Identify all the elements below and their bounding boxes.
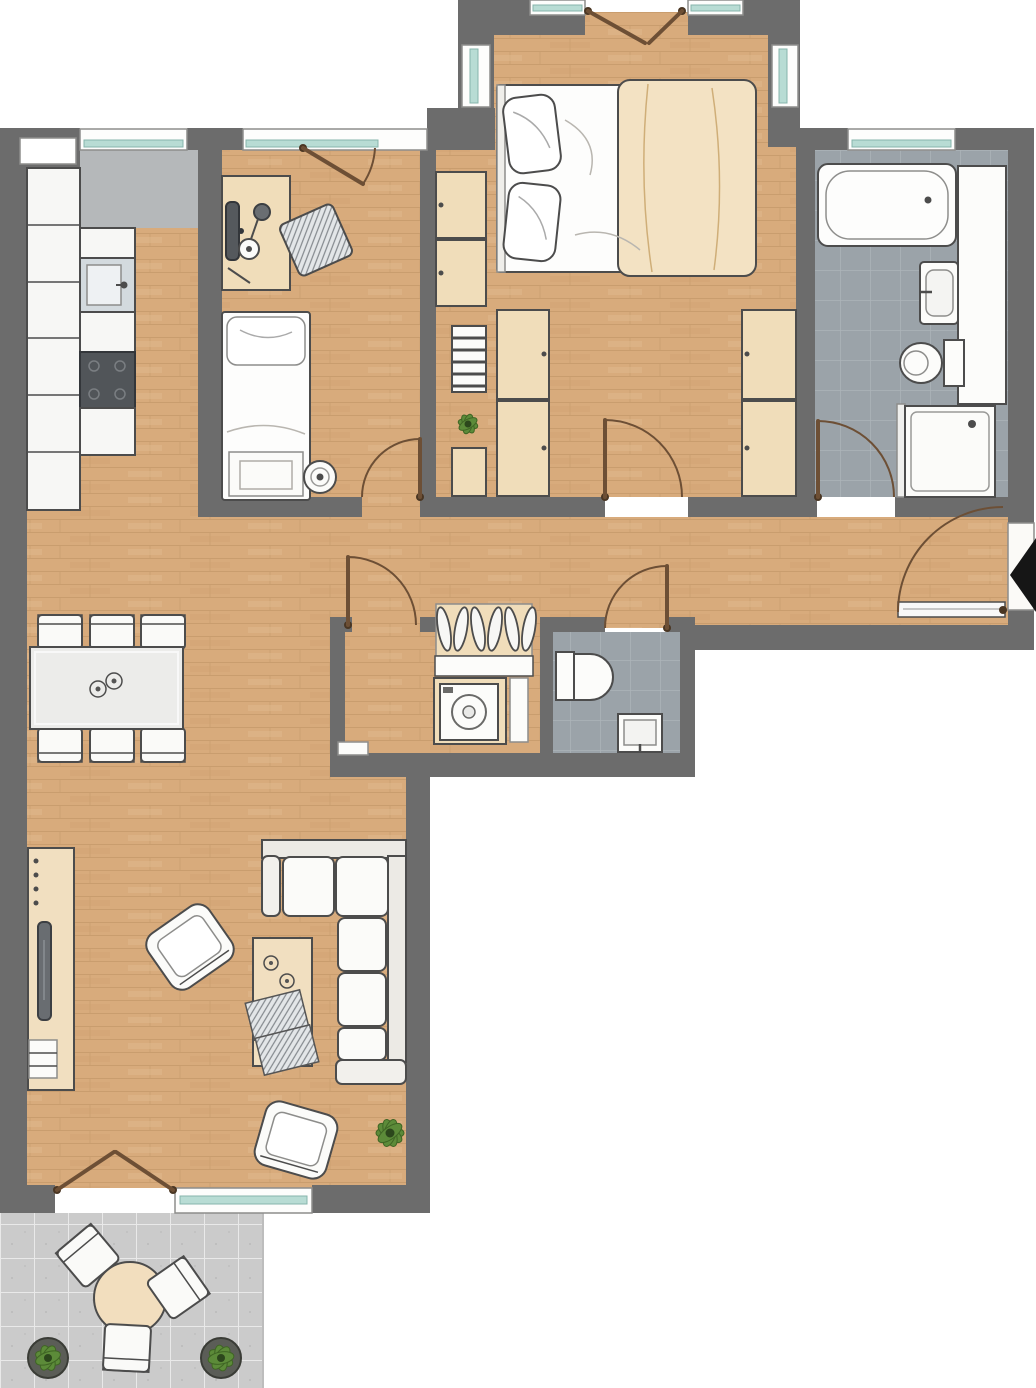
cabinet-knob — [542, 446, 547, 451]
bath-toilet — [900, 340, 964, 386]
bath-cabinet — [958, 166, 1006, 404]
chair-seat — [141, 728, 185, 762]
shower-drain — [968, 420, 976, 428]
laundry-mat — [338, 742, 368, 755]
dining — [30, 615, 185, 762]
wall-laundry-left — [330, 617, 345, 753]
bathroom-window — [848, 129, 955, 150]
kitchen-work-zone — [80, 150, 198, 228]
sofa-cushion — [338, 973, 386, 1026]
sofa-back-right — [388, 856, 406, 1062]
table-plate-dot — [96, 687, 101, 692]
tub-drain — [925, 197, 932, 204]
pillow — [502, 93, 563, 175]
pillow — [502, 181, 562, 262]
wc-toilet-tank — [556, 652, 574, 700]
sofa-cushion — [338, 918, 386, 971]
plant-center — [217, 1354, 225, 1362]
wardrobe-left — [497, 310, 549, 399]
wall-wc-right — [680, 617, 695, 753]
dining-chair — [141, 615, 185, 649]
wall-hall-bottom — [680, 625, 1034, 650]
wall-bay-top-c — [688, 15, 743, 35]
dining-chair — [38, 615, 82, 649]
kitchen-sink — [80, 258, 135, 312]
wall-kid-bedroom — [420, 147, 436, 517]
wall-living-bottom-a — [0, 1185, 55, 1213]
cabinet-knob — [542, 352, 547, 357]
sofa-arm-bottom — [336, 1060, 406, 1084]
chair-seat — [38, 615, 82, 649]
toilet-bowl — [900, 343, 942, 383]
monitor — [226, 202, 239, 260]
wall-south-rooms-c — [688, 497, 817, 517]
cabinet-knob — [439, 271, 444, 276]
shower-partition — [897, 404, 905, 497]
wc-sink-basin — [624, 720, 656, 745]
wall-right-upper — [1008, 128, 1034, 523]
plant-center — [465, 421, 472, 428]
kitchen-counter-mid — [80, 312, 135, 352]
kid-room-window — [243, 129, 427, 150]
wall-kitchen-kid — [198, 150, 222, 497]
window-glass — [246, 140, 378, 147]
sink-basin — [87, 265, 121, 305]
laundry-shelf — [435, 656, 533, 676]
kitchen-cabinet-row — [27, 168, 80, 510]
sofa-back-top — [262, 840, 406, 858]
bay-side-window-left — [462, 45, 490, 107]
wall-top-right-a — [797, 128, 848, 150]
dining-chair — [90, 728, 134, 762]
balcony-chair-3 — [103, 1324, 151, 1372]
tub-outer — [818, 164, 956, 246]
bay-window-right — [688, 0, 743, 15]
bay-window-left — [530, 0, 585, 15]
sideboard-knob — [34, 859, 39, 864]
window-glass — [470, 49, 478, 103]
sofa-arm-left — [262, 856, 280, 916]
plant-center — [386, 1129, 395, 1138]
door-hinge — [999, 606, 1007, 614]
double-bed — [497, 80, 756, 276]
window-glass — [852, 140, 951, 147]
plant-center — [44, 1354, 52, 1362]
wall-mid-bottom — [330, 753, 695, 777]
cabinet-knob — [439, 203, 444, 208]
wall-living-bottom-b — [312, 1185, 430, 1213]
washer-panel — [443, 687, 453, 693]
kitchen-counter-top — [80, 228, 135, 258]
wc-toilet-bowl — [574, 654, 613, 700]
bay-side-window-right — [772, 45, 798, 107]
sofa-cushion — [283, 857, 334, 916]
laundry-cabinet — [510, 678, 528, 742]
floor-plan-page — [0, 0, 1036, 1388]
cabinet-knob — [745, 446, 750, 451]
window-glass — [691, 5, 740, 11]
wall-south-rooms-b — [430, 497, 605, 517]
dining-chair — [90, 615, 134, 649]
sideboard-knob — [34, 873, 39, 878]
dining-chair — [141, 728, 185, 762]
balcony-plant-left — [28, 1338, 68, 1378]
kitchen-stove — [80, 352, 135, 408]
chair-seat — [103, 1324, 151, 1372]
table-plate-dot — [112, 679, 117, 684]
sofa-cushion — [338, 1028, 386, 1060]
cup-dot — [269, 961, 273, 965]
wall-laundry-wc — [540, 617, 553, 753]
chair-seat — [141, 615, 185, 649]
washing-machine — [440, 684, 498, 740]
wall-left — [0, 150, 27, 1213]
bedroom-cabinet-low — [452, 448, 486, 496]
cabinet-knob — [745, 352, 750, 357]
sideboard-knob — [34, 887, 39, 892]
wardrobe-right — [742, 310, 796, 399]
wall-top-kid — [187, 128, 243, 150]
kitchen-window — [80, 129, 187, 150]
cup-dot — [285, 979, 289, 983]
shower-base — [905, 406, 995, 497]
media-box-stack — [29, 1040, 57, 1078]
window-glass — [84, 140, 183, 147]
chair-seat — [90, 728, 134, 762]
balcony-plant-right — [201, 1338, 241, 1378]
monitor-stand — [238, 228, 244, 234]
window-glass — [533, 5, 582, 11]
sofa-cushion — [336, 857, 388, 916]
chair-seat — [38, 728, 82, 762]
bed-pillow — [502, 93, 563, 175]
window-glass — [180, 1196, 307, 1204]
bed-pillow — [227, 317, 305, 365]
wall-bedroom-bath — [796, 147, 815, 497]
living-window — [175, 1188, 312, 1213]
wardrobe-left — [497, 401, 549, 496]
wall-living-right — [406, 777, 430, 1213]
window-glass — [779, 49, 787, 103]
sideboard-knob — [34, 901, 39, 906]
washer-drum-center — [463, 706, 475, 718]
wall-bay-top-b — [530, 15, 585, 35]
lamp-base-dot — [246, 246, 252, 252]
floor-plan-canvas — [0, 0, 1036, 1388]
chair-seat — [90, 615, 134, 649]
kitchen-counter-low — [80, 408, 135, 455]
dining-chair — [38, 728, 82, 762]
bed-pillow — [502, 181, 562, 262]
single-bed — [222, 312, 310, 500]
shower — [897, 404, 995, 497]
wall-bay-top-a — [458, 0, 530, 35]
toilet-tank — [944, 340, 964, 386]
wardrobe-right — [742, 401, 796, 496]
stool-dot — [317, 474, 324, 481]
stove-body — [80, 352, 135, 408]
bathtub — [818, 164, 956, 246]
desk-lamp — [254, 204, 270, 220]
wall-niche — [20, 138, 76, 164]
bed-duvet — [618, 80, 756, 276]
bath-sink — [920, 262, 958, 324]
bedroom-shelf — [452, 326, 486, 392]
